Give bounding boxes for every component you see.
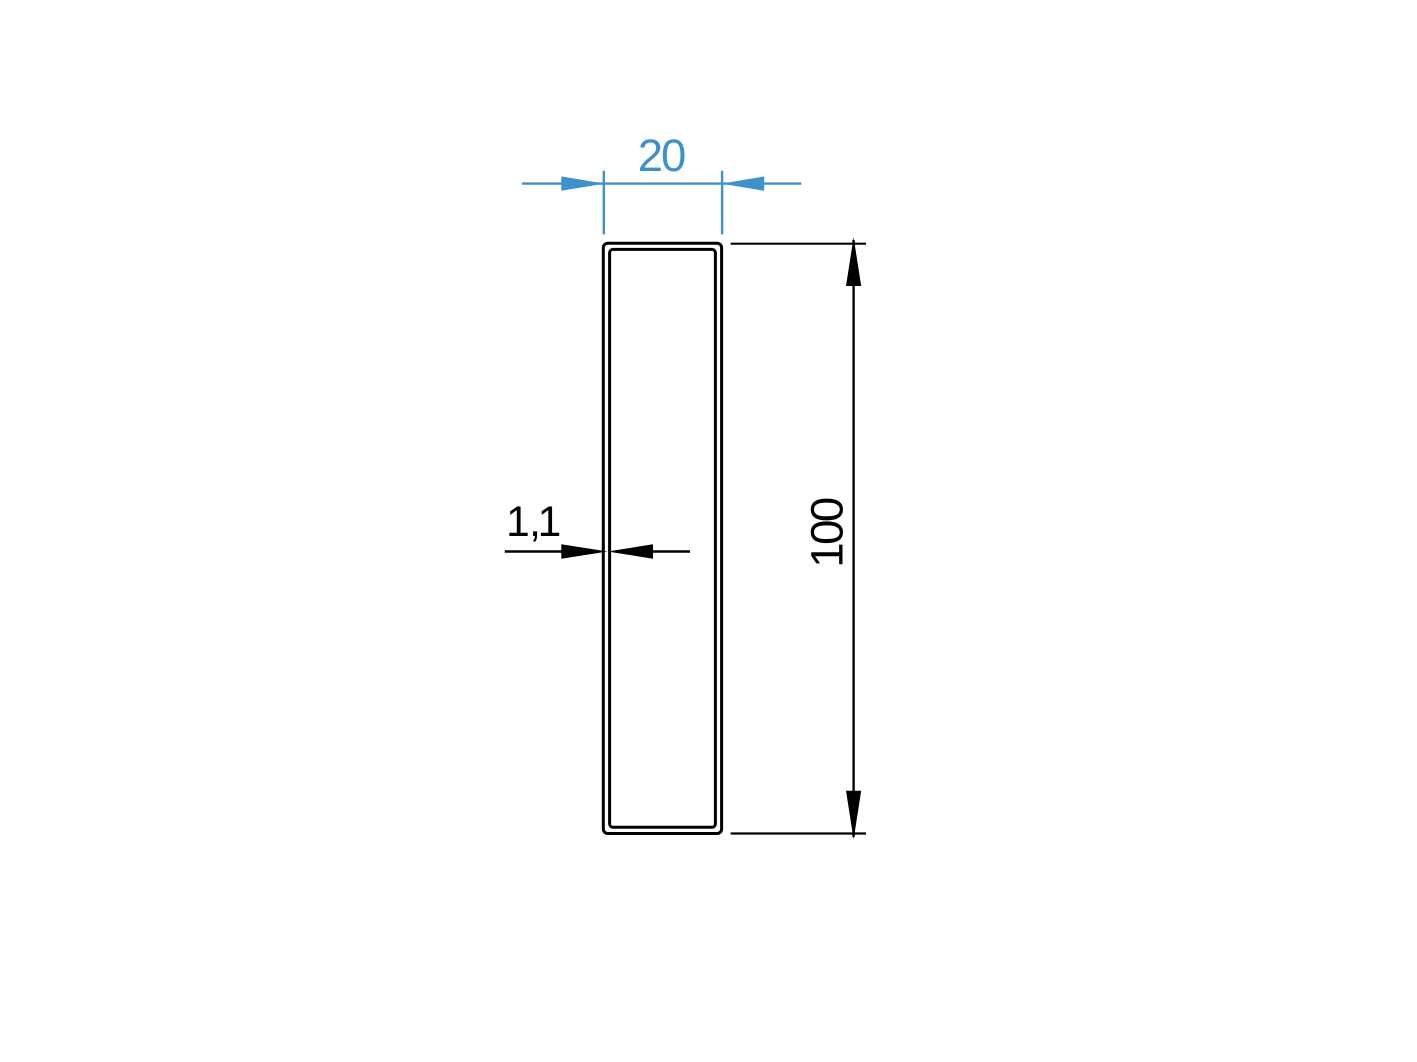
svg-text:1,1: 1,1 — [506, 499, 561, 546]
svg-text:100: 100 — [802, 498, 853, 568]
svg-text:20: 20 — [638, 130, 685, 181]
